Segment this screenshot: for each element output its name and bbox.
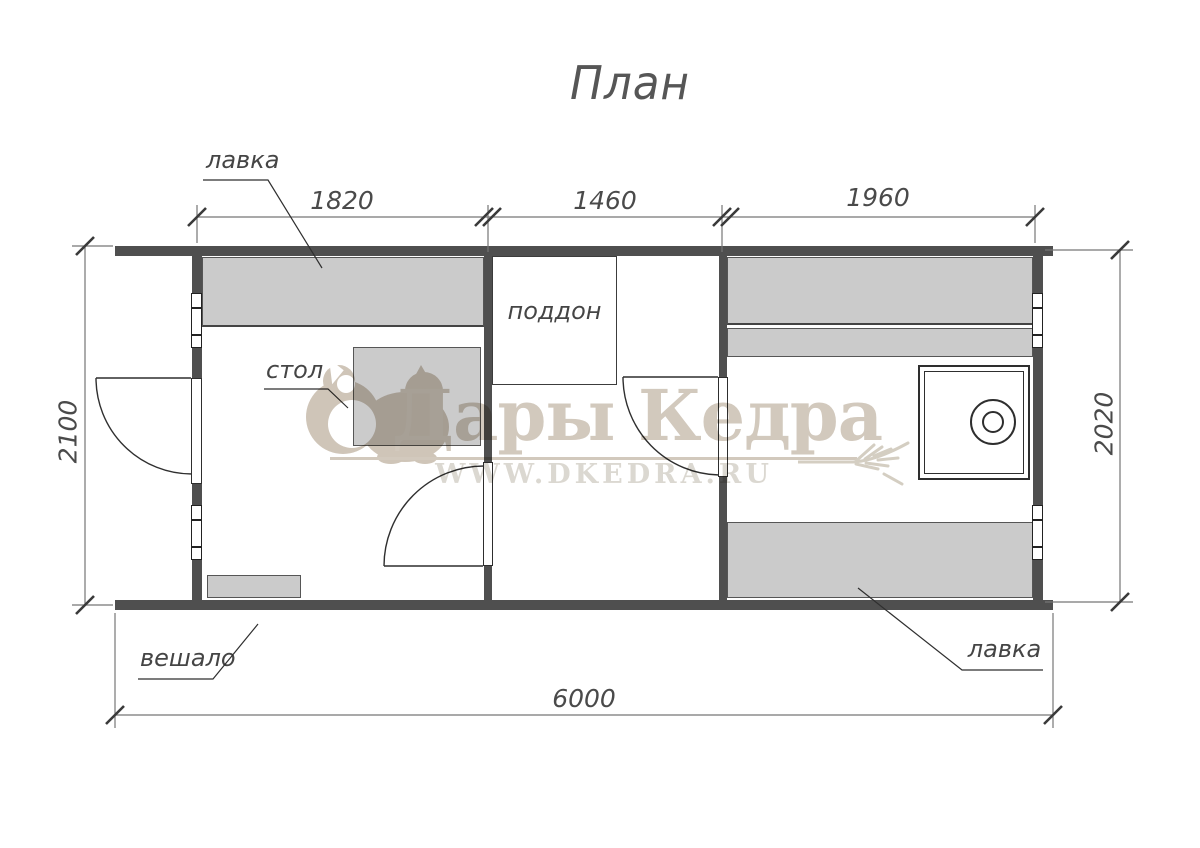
entrance-door-swing xyxy=(96,378,192,474)
plan-linework xyxy=(0,0,1200,848)
leader-bench-top xyxy=(203,180,322,268)
floor-plan-canvas: План xyxy=(0,0,1200,848)
dimension-lines xyxy=(72,205,1133,728)
leader-bench-bottom xyxy=(858,588,1043,670)
dimension-ticks xyxy=(76,208,1129,724)
leader-hanger xyxy=(138,624,258,679)
door-swing-left-middle xyxy=(384,466,484,566)
door-swing-middle-right xyxy=(623,377,719,475)
leader-table xyxy=(264,389,348,408)
